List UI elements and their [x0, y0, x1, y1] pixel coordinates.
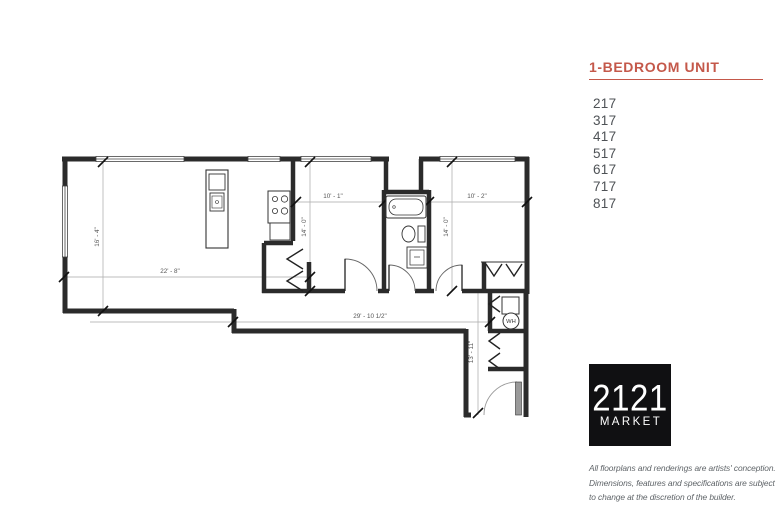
- unit-number: 817: [593, 196, 616, 213]
- floorplan-page: WH 16' - 4" 22' - 8" 14' - 0" 10' - 1" 1…: [0, 0, 780, 517]
- unit-number: 717: [593, 179, 616, 196]
- kitchen-fixtures: [206, 170, 290, 248]
- disclaimer-text: All floorplans and renderings are artist…: [589, 461, 776, 505]
- dim-living-width: 22' - 8": [160, 268, 180, 275]
- unit-number: 317: [593, 113, 616, 130]
- toilet-tank: [418, 226, 425, 242]
- bedroom2-door: [436, 265, 462, 291]
- title-underline: [589, 79, 763, 80]
- dim-bedroom2-width: 10' - 2": [467, 193, 487, 200]
- closet-doors: [287, 249, 522, 369]
- dimension-ticks: [59, 157, 532, 418]
- disclaimer-line: to change at the discretion of the build…: [589, 490, 776, 505]
- page-title: 1-BEDROOM UNIT: [589, 59, 720, 75]
- floorplan-drawing: WH 16' - 4" 22' - 8" 14' - 0" 10' - 1" 1…: [0, 0, 560, 517]
- dim-bedroom2-height: 14' - 0": [443, 217, 450, 237]
- disclaimer-line: All floorplans and renderings are artist…: [589, 461, 776, 476]
- unit-number: 417: [593, 129, 616, 146]
- entry-door-arc: [484, 382, 517, 415]
- entry-door-leaf: [516, 382, 522, 415]
- dim-hallway-length: 13' - 11": [468, 341, 475, 364]
- unit-number: 217: [593, 96, 616, 113]
- stove: [268, 191, 290, 223]
- kitchen-counter: [270, 223, 290, 240]
- bedroom1-door: [345, 259, 377, 291]
- brand-logo-name: 2121: [592, 381, 667, 415]
- dim-living-height: 16' - 4": [94, 227, 101, 247]
- unit-number: 617: [593, 162, 616, 179]
- bathroom-fixtures: [386, 196, 427, 268]
- living-closet-bifold: [287, 249, 303, 291]
- unit-number: 517: [593, 146, 616, 163]
- dim-bedroom1-height: 14' - 0": [301, 217, 308, 237]
- water-heater-label: WH: [506, 319, 516, 325]
- toilet: [402, 226, 415, 242]
- dishwasher: [209, 174, 225, 190]
- dim-overall-width: 29' - 10 1/2": [353, 313, 387, 320]
- dimension-lines: [64, 161, 527, 415]
- bedroom2-closet-bifold: [486, 264, 522, 276]
- disclaimer-line: Dimensions, features and specifications …: [589, 476, 776, 491]
- hall-closet-bifold: [489, 333, 500, 369]
- dim-bedroom1-width: 10' - 1": [323, 193, 343, 200]
- unit-number-list: 217 317 417 517 617 717 817: [593, 96, 616, 212]
- shelf-box: [502, 297, 519, 314]
- brand-logo: 2121 MARKET: [589, 364, 671, 446]
- bathroom-door: [389, 265, 415, 291]
- info-panel: 1-BEDROOM UNIT 217 317 417 517 617 717 8…: [589, 0, 763, 517]
- water-heater-area: WH: [502, 297, 519, 329]
